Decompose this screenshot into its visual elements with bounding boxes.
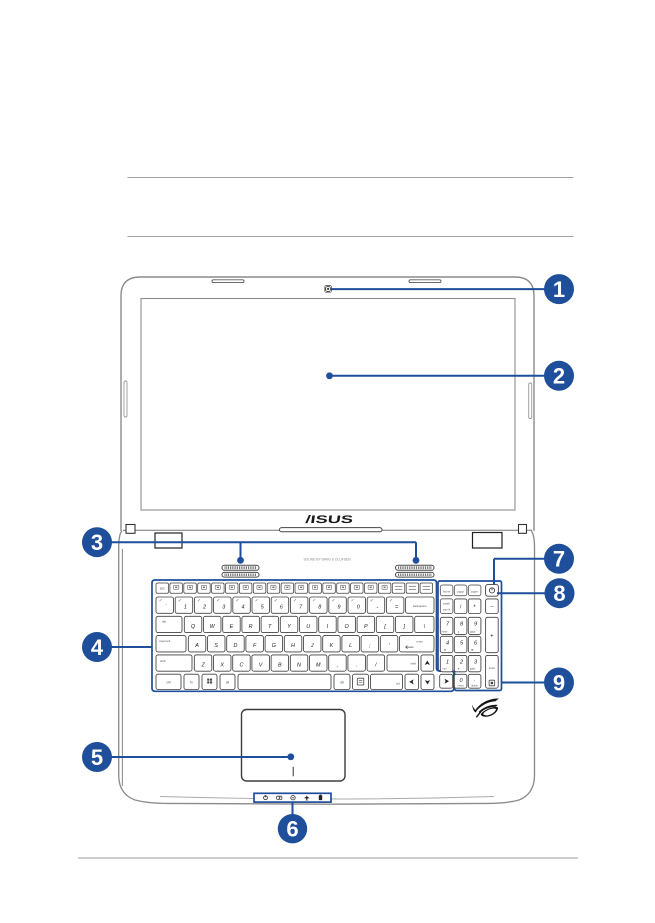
svg-text:end: end — [443, 668, 448, 671]
svg-text:,: , — [337, 662, 339, 668]
svg-text:.: . — [356, 662, 358, 668]
svg-text:U: U — [306, 624, 310, 630]
svg-text:6: 6 — [280, 604, 283, 610]
svg-text:ctrl: ctrl — [396, 681, 400, 685]
svg-text:-: - — [377, 604, 379, 610]
svg-text:home: home — [443, 589, 451, 593]
svg-text:L: L — [349, 643, 352, 649]
svg-text:D: D — [233, 643, 237, 649]
svg-text:K: K — [330, 643, 334, 649]
svg-text:J: J — [310, 643, 314, 649]
svg-text:–: – — [490, 604, 493, 610]
svg-text:2: 2 — [202, 604, 206, 610]
svg-text:shift: shift — [410, 662, 416, 666]
svg-text:enter: enter — [416, 640, 423, 644]
svg-text:alt: alt — [340, 681, 343, 685]
svg-text:6: 6 — [286, 817, 298, 842]
svg-text:.: . — [474, 677, 475, 683]
svg-text:▼: ▼ — [457, 668, 459, 671]
svg-text:home: home — [442, 630, 449, 633]
svg-text:9: 9 — [474, 622, 477, 628]
svg-text:esc: esc — [160, 587, 165, 591]
svg-text:pgup: pgup — [470, 630, 476, 633]
svg-text:/ISUS: /ISUS — [305, 514, 354, 526]
svg-text:insert: insert — [458, 685, 464, 688]
svg-text:backspace: backspace — [413, 604, 427, 608]
svg-text:pgdn: pgdn — [471, 589, 478, 593]
svg-text:=: = — [395, 604, 398, 610]
svg-text:alt: alt — [226, 681, 229, 685]
svg-text:4: 4 — [91, 635, 104, 660]
svg-text:9: 9 — [553, 670, 565, 695]
svg-text:SOUND BY BANG & OLUFSEN: SOUND BY BANG & OLUFSEN — [303, 557, 351, 561]
svg-text:A: A — [194, 643, 199, 649]
svg-text:G: G — [272, 643, 276, 649]
svg-text:caps lock: caps lock — [159, 639, 171, 643]
svg-text:X: X — [219, 662, 224, 668]
svg-text:9: 9 — [338, 604, 341, 610]
svg-text:1: 1 — [446, 660, 449, 666]
svg-text:4: 4 — [242, 604, 245, 610]
svg-text:shift: shift — [160, 659, 166, 663]
svg-text:ctrl: ctrl — [166, 681, 171, 685]
svg-text:◀: ◀ — [444, 649, 446, 652]
svg-text:4: 4 — [446, 641, 449, 647]
svg-text:tab: tab — [162, 620, 167, 624]
svg-text:7: 7 — [553, 547, 565, 572]
svg-text:0: 0 — [357, 604, 360, 610]
svg-text:▶: ▶ — [472, 649, 474, 652]
svg-text:M: M — [316, 662, 321, 668]
svg-text:3: 3 — [91, 530, 103, 555]
svg-text:+: + — [490, 634, 494, 640]
svg-text:pgup: pgup — [457, 589, 464, 593]
svg-text:1: 1 — [553, 277, 565, 302]
svg-text:5: 5 — [91, 745, 103, 770]
svg-text:H: H — [291, 643, 295, 649]
svg-text:E: E — [230, 624, 234, 630]
svg-text:delete: delete — [471, 685, 478, 688]
svg-text:pgdn: pgdn — [470, 668, 476, 671]
svg-text:3: 3 — [222, 604, 225, 610]
svg-text:8: 8 — [553, 581, 565, 606]
svg-text:▲: ▲ — [457, 630, 459, 633]
svg-text:B: B — [278, 662, 282, 668]
svg-text:fn: fn — [190, 681, 193, 685]
svg-text:8: 8 — [318, 604, 321, 610]
svg-text:P: P — [364, 624, 368, 630]
svg-text:enter: enter — [489, 666, 495, 670]
svg-text:N: N — [297, 662, 301, 668]
svg-text:`: ` — [165, 604, 167, 610]
svg-text:S: S — [214, 643, 218, 649]
svg-text:R: R — [249, 624, 253, 630]
svg-text:switch: switch — [443, 602, 451, 605]
svg-text:num lk: num lk — [443, 608, 451, 611]
svg-text:2: 2 — [553, 364, 565, 389]
svg-text:1: 1 — [184, 604, 187, 610]
svg-text:Z: Z — [200, 662, 205, 668]
svg-text:C: C — [239, 662, 243, 668]
svg-text:Y: Y — [287, 624, 291, 630]
